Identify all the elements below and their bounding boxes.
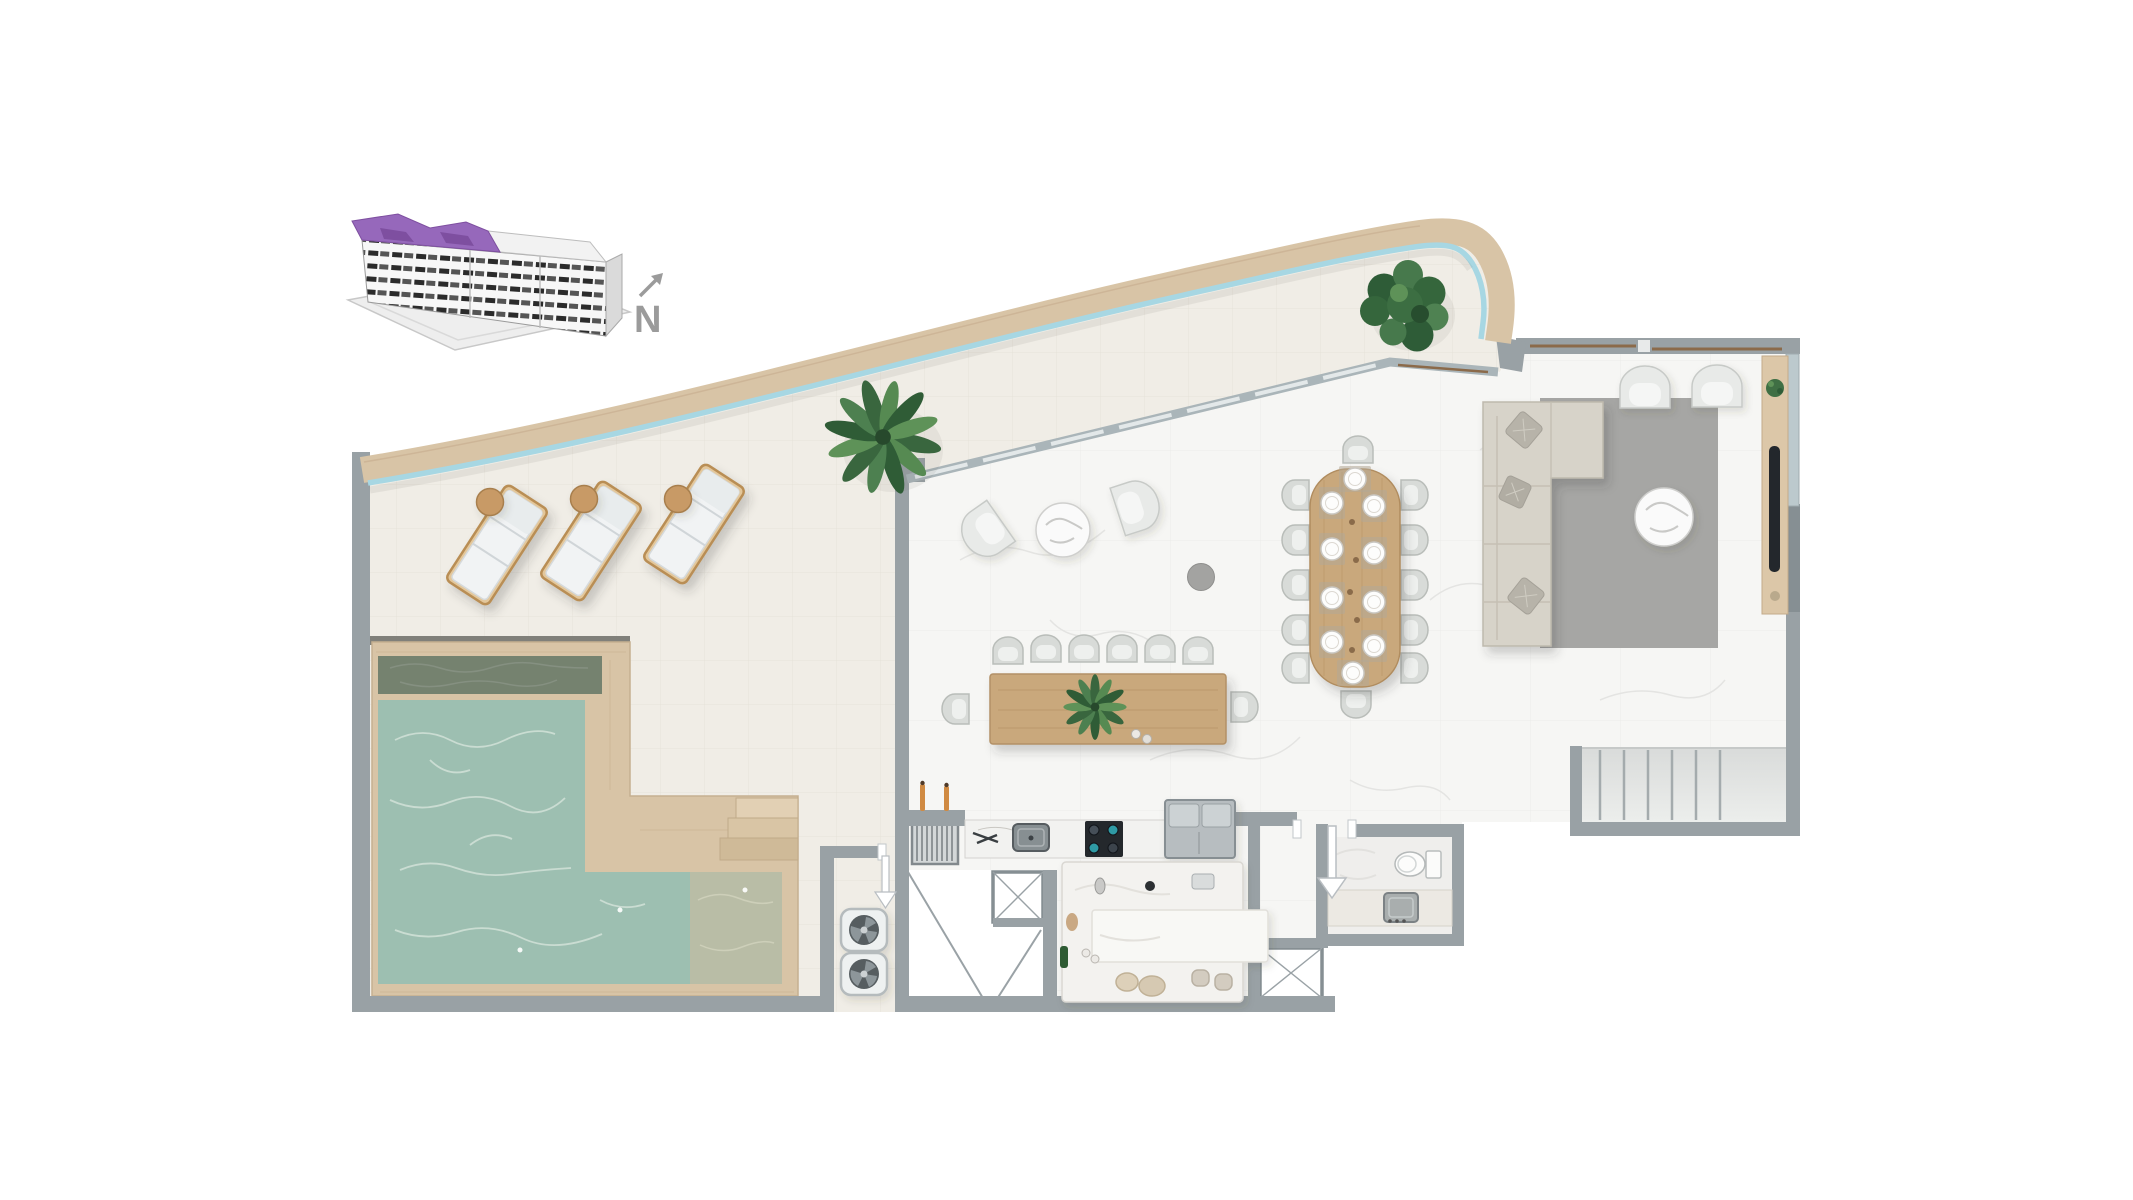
wall-left [352,452,370,1012]
elevator-icon-2 [1260,948,1322,998]
pool-water-main [378,700,585,984]
kitchen-sink [1013,824,1049,851]
elevator-icon [993,872,1043,922]
table-decor [1132,730,1141,739]
wall-main-vertical [895,460,909,1012]
wall-stairs-left [1570,746,1582,834]
side-table [571,486,598,513]
stairs-icon [1582,748,1786,822]
side-table [665,486,692,513]
wall-bathroom-bottom [1316,934,1464,946]
armchair [1692,365,1742,407]
floor-plan-canvas: N [0,0,2133,1200]
tv [1769,446,1780,572]
wall-elevator-right [1043,870,1057,1012]
fan-icon [841,909,887,951]
wall-niche-top [820,846,878,858]
living-coffee-table [1635,488,1693,546]
side-table [477,489,504,516]
door-track-joint [1638,340,1650,352]
fan-icon [841,953,887,995]
wall-fridge-right [1235,812,1297,826]
north-label: N [634,299,661,341]
wall-niche-left [820,848,834,1012]
wall-elevator-stub [993,918,1043,927]
vanity [1328,890,1452,926]
tv-console [1762,356,1788,614]
wall-right-lower [1786,608,1800,834]
wall-bottom-right [1570,822,1800,836]
building-locator-icon [348,214,630,350]
locator-endcap [606,254,622,336]
pool-water-extension [585,872,690,984]
refrigerator [1165,800,1235,858]
kitchen-island [1062,862,1268,1002]
wall-bathroom-right [1452,824,1464,946]
floor-plan-page: N [0,0,2133,1200]
pool-dark-lane [378,656,602,694]
console-decor [1770,591,1780,601]
armchair [1620,366,1670,408]
bathroom [1328,837,1452,934]
console-plant [1766,379,1784,397]
coffee-table [1036,503,1090,557]
wall-kitchen-stub [895,810,965,826]
kitchen-counter [965,820,1165,858]
toilet-icon [1395,851,1441,878]
table-decor [1143,735,1152,744]
floor-stool [1188,564,1215,591]
wall-bathroom-top [1348,824,1462,837]
wall-bottom-left [352,996,834,1012]
pool-tanning-shelf [690,872,782,984]
north-arrow-icon: N [634,273,663,341]
cooktop [1085,821,1123,857]
